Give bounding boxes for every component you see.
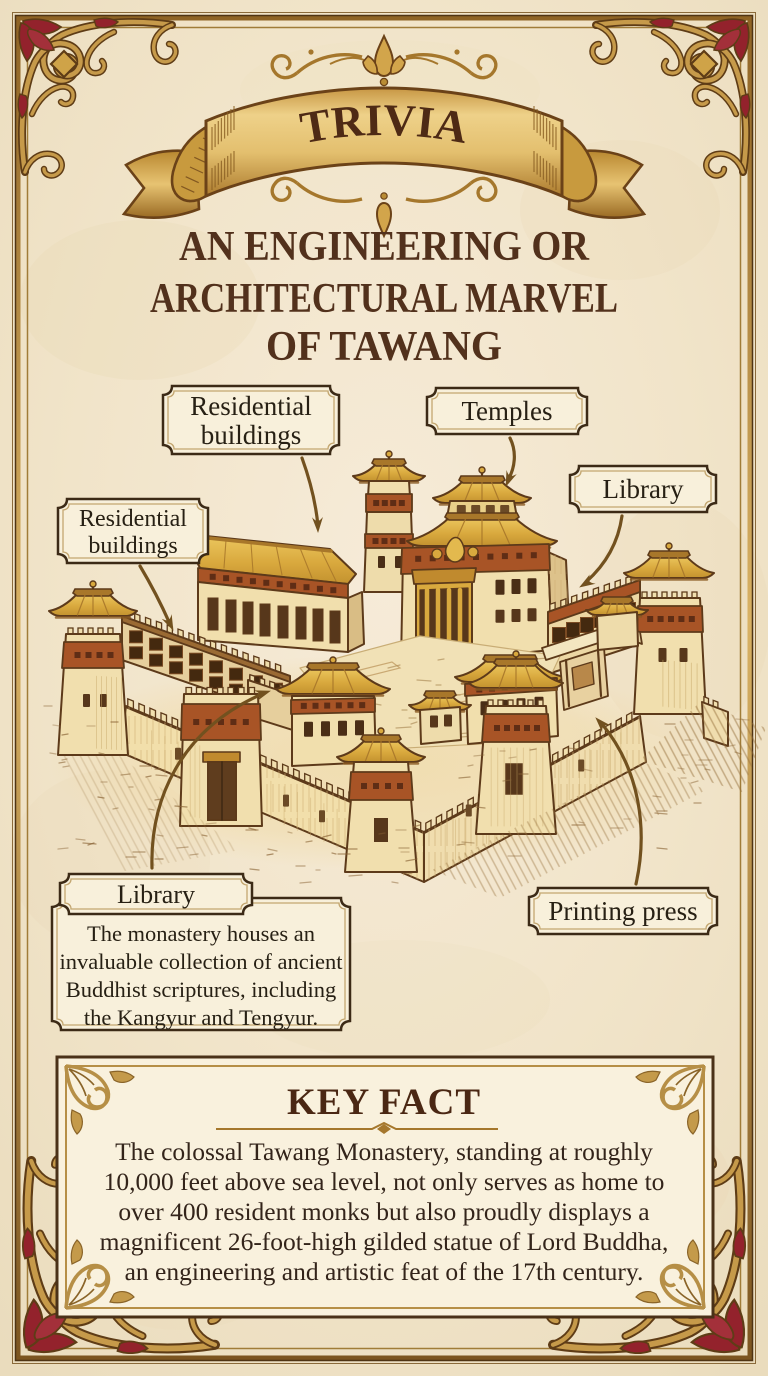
svg-text:Residential: Residential — [190, 391, 311, 421]
svg-text:invaluable collection of ancie: invaluable collection of ancient — [59, 949, 343, 974]
svg-text:Printing press: Printing press — [548, 896, 697, 926]
svg-text:OF TAWANG: OF TAWANG — [266, 324, 502, 370]
svg-text:an engineering and artistic fe: an engineering and artistic feat of the … — [125, 1257, 644, 1286]
svg-text:buildings: buildings — [88, 533, 177, 559]
svg-text:over 400 resident monks but al: over 400 resident monks but also proudly… — [118, 1197, 649, 1226]
svg-text:Temples: Temples — [461, 396, 552, 426]
svg-text:AN ENGINEERING OR: AN ENGINEERING OR — [179, 224, 590, 270]
svg-text:buildings: buildings — [201, 420, 302, 450]
svg-text:magnificent 26-foot-high gilde: magnificent 26-foot-high gilded statue o… — [100, 1227, 669, 1256]
svg-text:ARCHITECTURAL MARVEL: ARCHITECTURAL MARVEL — [150, 276, 618, 322]
svg-text:KEY FACT: KEY FACT — [287, 1082, 481, 1123]
svg-text:Library: Library — [117, 880, 195, 909]
svg-text:the Kangyur and Tengyur.: the Kangyur and Tengyur. — [84, 1005, 318, 1030]
svg-text:10,000 feet above sea level, n: 10,000 feet above sea level, not only se… — [104, 1167, 665, 1196]
svg-text:Library: Library — [603, 474, 684, 504]
svg-text:The colossal Tawang Monastery,: The colossal Tawang Monastery, standing … — [115, 1137, 653, 1166]
svg-text:Buddhist scriptures, including: Buddhist scriptures, including — [66, 977, 337, 1002]
svg-text:TRIVIA: TRIVIA — [297, 95, 472, 153]
svg-text:The monastery houses an: The monastery houses an — [87, 921, 315, 946]
svg-text:Residential: Residential — [79, 506, 187, 532]
